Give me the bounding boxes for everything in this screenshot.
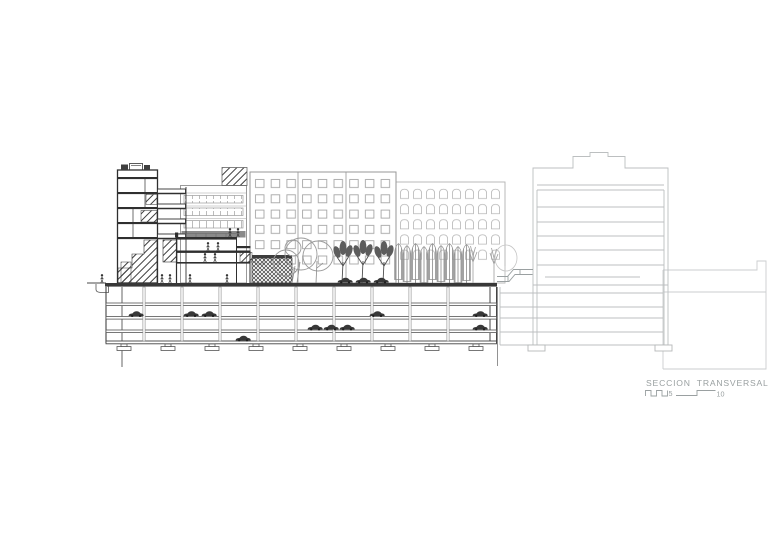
cypress-icon: [412, 244, 420, 284]
scale-label-10: 10: [717, 390, 725, 399]
parking-slabs: [106, 303, 497, 344]
cypress-icon: [463, 245, 471, 285]
right-neighbor-building: [500, 153, 672, 352]
annex-crosshatch-volume: [252, 258, 292, 283]
footing-icon: [161, 344, 175, 351]
rooftop-core: [222, 168, 247, 186]
footing-icon: [249, 344, 263, 351]
cypress-row: [395, 244, 471, 287]
footing-icon: [117, 344, 131, 351]
stair-block-b: [146, 195, 157, 205]
roof-slab: [537, 185, 664, 190]
basement-floors: [500, 287, 668, 345]
person-icon: [161, 274, 164, 283]
basement-room: [121, 262, 131, 283]
striped-midrise-building: [181, 168, 248, 284]
stair-block-a: [141, 211, 157, 223]
cypress-icon: [403, 246, 411, 286]
roof-slab: [176, 237, 237, 240]
section-drawing: SECCION TRANSVERSAL 5 10: [0, 0, 780, 551]
hatched-step: [240, 253, 252, 263]
square-window-grid: [252, 176, 394, 266]
scale-bar-teeth: [646, 391, 668, 397]
title-block: SECCION TRANSVERSAL 5 10: [646, 378, 769, 399]
footings-group: [117, 344, 483, 351]
left-tower-section: [118, 164, 187, 284]
right-wall: [490, 287, 497, 343]
parapet: [175, 233, 178, 238]
scale-bar-step: [676, 391, 716, 396]
cypress-icon: [395, 244, 403, 284]
step-slab: [237, 246, 251, 248]
drawing-sheet: SECCION TRANSVERSAL 5 10: [0, 0, 780, 551]
cypress-icon: [454, 247, 462, 287]
footing-icon: [293, 344, 307, 351]
parapet-outline: [533, 153, 668, 193]
roof-equipment: [121, 164, 150, 171]
person-icon: [101, 274, 104, 283]
mid-slab: [176, 251, 251, 253]
storefront-band: [182, 231, 246, 238]
walls: [533, 190, 668, 345]
footing-icon: [381, 344, 395, 351]
plaza-deck-slab: [105, 283, 497, 287]
floor-slab: [176, 262, 251, 264]
cypress-icon: [420, 247, 428, 287]
stair-tower: [163, 240, 177, 262]
footing-icon: [469, 344, 483, 351]
cypress-icon: [446, 244, 454, 284]
scale-label-5: 5: [669, 389, 673, 398]
drawing-title: SECCION TRANSVERSAL: [646, 378, 769, 388]
parking-garage: [106, 287, 498, 367]
right-plot-boundary: [663, 261, 766, 369]
cypress-icon: [437, 246, 445, 286]
neighbor-footings: [528, 345, 672, 351]
person-icon: [169, 274, 172, 283]
footing-icon: [425, 344, 439, 351]
footing-icon: [205, 344, 219, 351]
cypress-icon: [429, 244, 437, 284]
annex-roof-band: [252, 255, 292, 258]
floor-lines: [537, 207, 664, 265]
footing-icon: [337, 344, 351, 351]
window-bands: [184, 196, 243, 229]
